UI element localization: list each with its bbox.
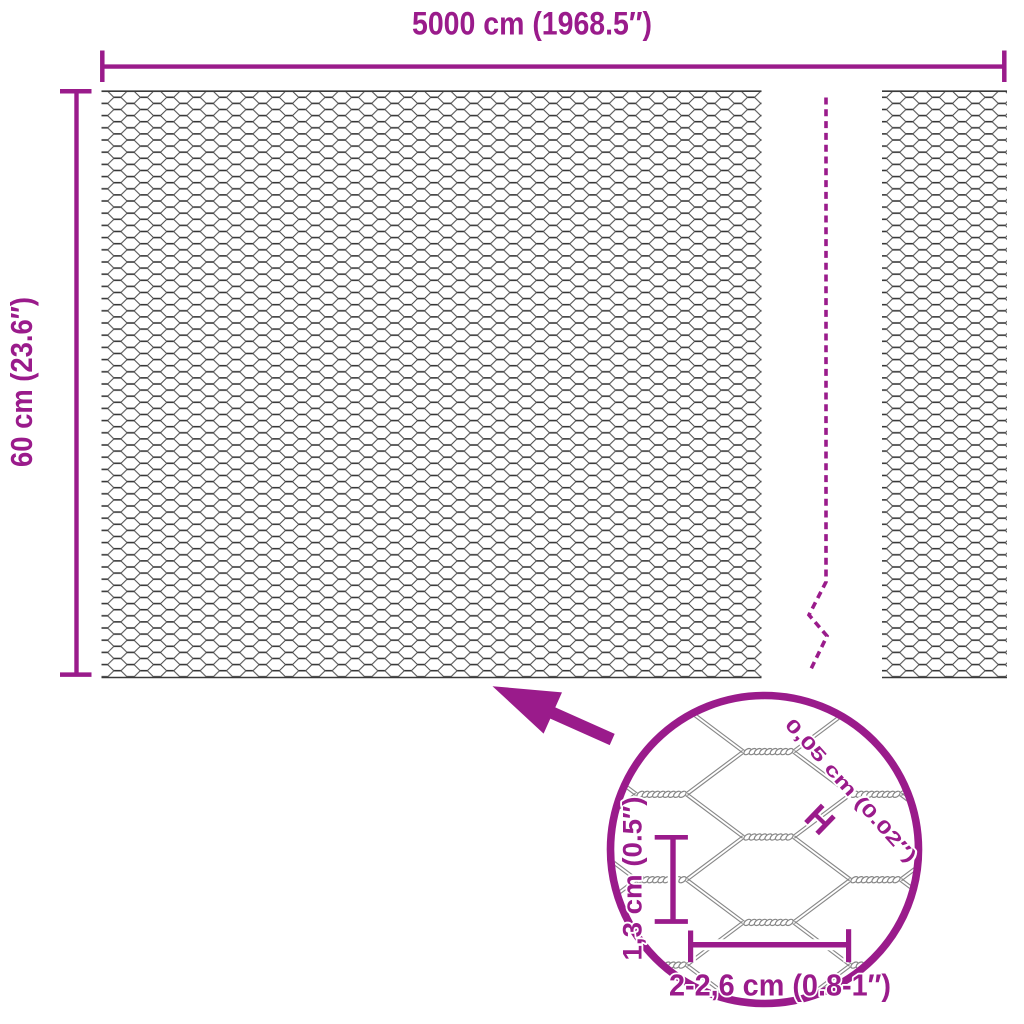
svg-text:2-2,6 cm (0.8-1″): 2-2,6 cm (0.8-1″): [669, 968, 891, 1003]
svg-text:1,3 cm (0.5″): 1,3 cm (0.5″): [618, 797, 648, 961]
svg-text:5000 cm (1968.5″): 5000 cm (1968.5″): [412, 6, 652, 42]
svg-text:60 cm (23.6″): 60 cm (23.6″): [4, 297, 39, 467]
svg-text:0,05 cm (0.02″): 0,05 cm (0.02″): [781, 714, 921, 866]
